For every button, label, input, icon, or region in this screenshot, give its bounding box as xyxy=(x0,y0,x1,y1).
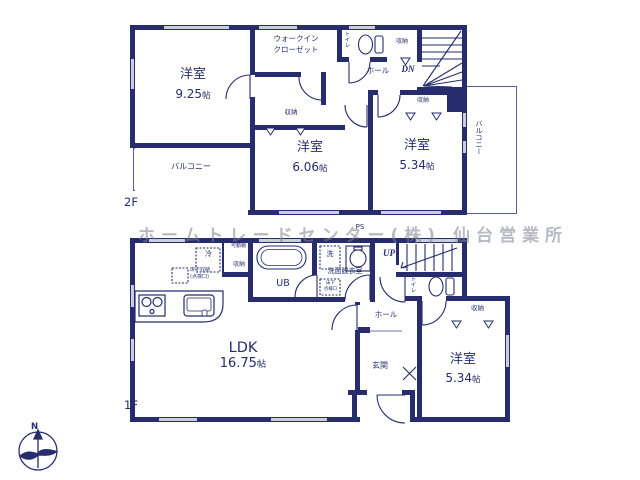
door-arc-wic-corridor xyxy=(299,77,322,100)
room-size-number: 9.25 xyxy=(175,87,202,101)
room-size-number: 5.34 xyxy=(399,158,426,172)
underfloor-storage-label-line2: (点検口) xyxy=(190,275,224,281)
door-arc-washroom xyxy=(345,275,370,300)
door-arc-entrance xyxy=(377,395,405,423)
room-534-1f-name: 洋室 xyxy=(430,353,496,368)
room-925-size: 9.25帖 xyxy=(160,88,226,102)
room-size-number: 6.06 xyxy=(292,160,319,174)
unit-bath-label: UB xyxy=(271,279,295,290)
entrance-label: 玄関 xyxy=(362,362,398,371)
size-unit: 帖 xyxy=(472,375,481,385)
door-arc-ldk-hall xyxy=(332,305,357,330)
storage-kitchen-label: 収納 xyxy=(226,262,252,269)
size-unit: 帖 xyxy=(319,164,328,174)
washroom-label: 洗面脱衣室 xyxy=(317,268,373,276)
balcony-2f-right-label: バルコニー xyxy=(475,120,482,155)
stairs-2f xyxy=(422,31,462,87)
toilet-icon-1f xyxy=(429,277,454,296)
door-arc-unit-bath xyxy=(295,275,317,297)
floor-label-2f: 2F xyxy=(124,196,138,209)
ldk-name: LDK xyxy=(193,340,293,356)
stairs-up-label: UP xyxy=(379,248,399,258)
compass-north-label: N xyxy=(31,423,38,433)
room-606-size: 6.06帖 xyxy=(277,161,343,175)
door-arc-room606 xyxy=(345,105,367,127)
storage-1f-room-label: 収納 xyxy=(449,305,506,312)
storage-2f-mid-label: 収納 xyxy=(260,109,322,116)
storage-2f-right-label: 収納 xyxy=(401,98,445,105)
room-size-number: 5.34 xyxy=(445,371,472,385)
room-size-number: 16.75 xyxy=(220,356,257,371)
washer-label: 洗 xyxy=(320,251,340,259)
shoe-cabinet-x-mark xyxy=(403,367,416,380)
door-arc-room925 xyxy=(226,75,250,99)
hall-2f-label: ホール xyxy=(360,67,396,75)
room-534-2f-size: 5.34帖 xyxy=(384,159,450,173)
wic-label-line1: ウォークイン xyxy=(256,35,336,43)
toilet-2f-label: トイレ xyxy=(343,31,349,48)
floor-label-1f: 1F xyxy=(124,399,138,412)
storage-2f-top-label: 収納 xyxy=(387,39,417,46)
balcony-2f-left-label: バルコニー xyxy=(151,163,231,172)
hall-1f-label: ホール xyxy=(366,311,406,319)
door-arc-room534-1f xyxy=(422,301,446,325)
kitchen-counter-icon xyxy=(135,291,223,322)
wic-label-line2: クローゼット xyxy=(256,46,336,54)
room-606-name: 洋室 xyxy=(277,141,343,156)
size-unit: 帖 xyxy=(426,162,435,172)
compass-icon xyxy=(19,430,58,470)
stairs-1f xyxy=(401,244,457,271)
stairs-down-label: DN xyxy=(398,64,418,74)
closet-hanger-marks xyxy=(266,58,493,328)
room-534-2f-name: 洋室 xyxy=(384,139,450,154)
room-925-name: 洋室 xyxy=(160,68,226,83)
fridge-label: 冷 xyxy=(197,251,220,259)
door-arc-room534-2f xyxy=(378,95,400,117)
underfloor-storage-label-line1: 床下収納 xyxy=(190,268,224,274)
bathtub-icon xyxy=(257,246,306,269)
size-unit: 帖 xyxy=(257,359,266,370)
toilet-icon-2f xyxy=(359,35,384,54)
underfloor-hatch-label-line1: 床下 xyxy=(321,281,340,286)
watermark-text: ホームトレードセンター(株) 仙台営業所 xyxy=(138,221,568,246)
underfloor-storage-box xyxy=(172,268,188,283)
floor-plan-canvas: 洋室 9.25帖 ウォークイン クローゼット トイレ ホール DN 収納 収納 … xyxy=(0,0,640,480)
door-arc-toilet-1f xyxy=(380,277,405,302)
room-534-1f-size: 5.34帖 xyxy=(430,372,496,386)
size-unit: 帖 xyxy=(202,91,211,101)
ldk-size: 16.75帖 xyxy=(193,357,293,372)
underfloor-hatch-label-line2: 点検口 xyxy=(321,287,340,292)
toilet-1f-label: トイレ xyxy=(409,276,415,293)
